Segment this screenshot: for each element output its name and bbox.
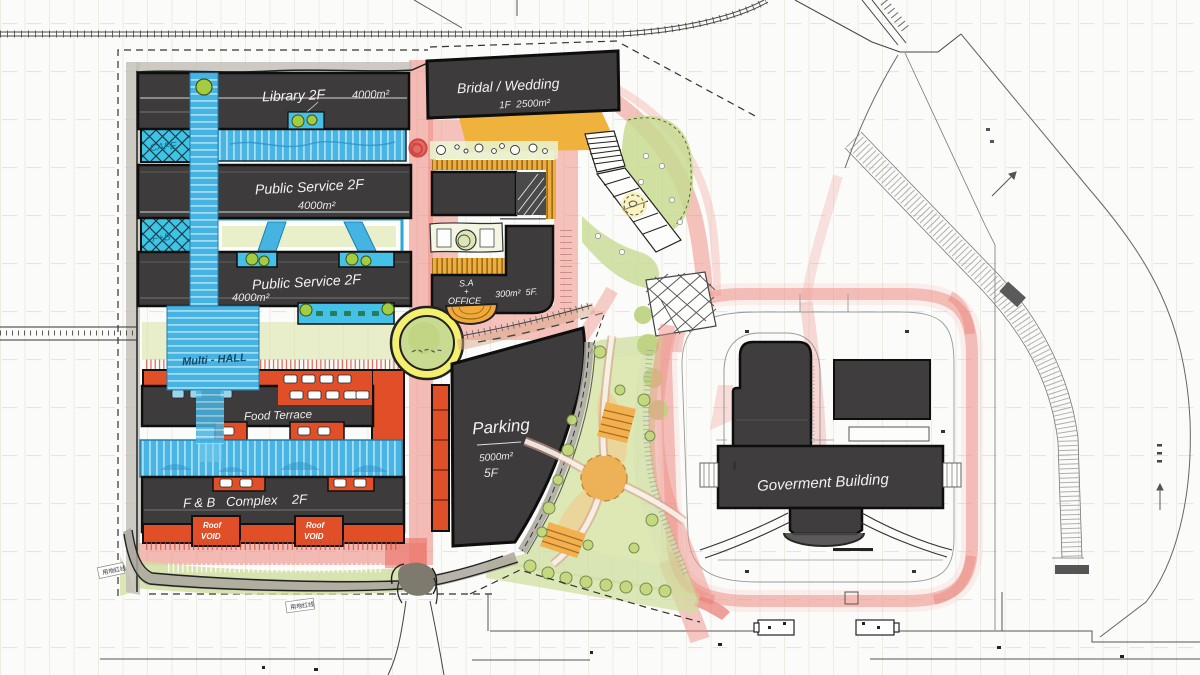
svg-text:5F: 5F (484, 466, 499, 480)
svg-text:CAFE: CAFE (150, 141, 178, 154)
svg-text:4000m²: 4000m² (352, 88, 390, 101)
svg-text:4000m²: 4000m² (232, 292, 270, 304)
svg-text:Roof: Roof (306, 521, 326, 530)
svg-text:+: + (464, 287, 469, 296)
svg-text:VOID: VOID (304, 532, 324, 541)
svg-text:F+B: F+B (152, 232, 172, 245)
svg-text:Roof: Roof (203, 521, 223, 530)
svg-text:Parking: Parking (472, 415, 531, 438)
svg-text:Food Terrace: Food Terrace (244, 409, 312, 423)
svg-text:Library 2F: Library 2F (262, 86, 327, 104)
svg-text:4000m²: 4000m² (298, 200, 336, 212)
svg-text:VOID: VOID (201, 532, 221, 541)
